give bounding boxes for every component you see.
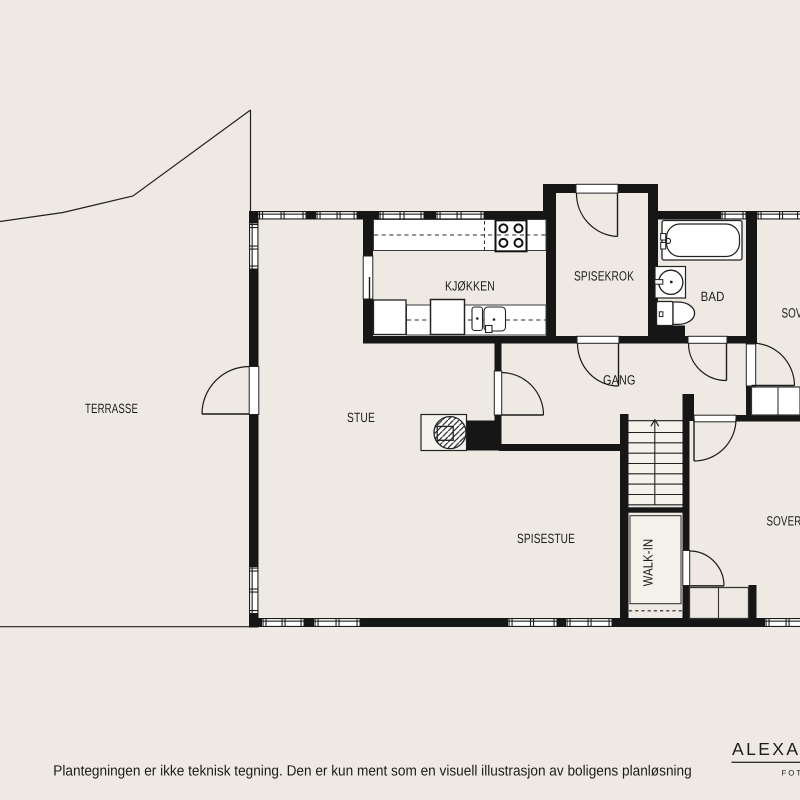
svg-text:Plantegningen er ikke teknisk: Plantegningen er ikke teknisk tegning. D… bbox=[53, 763, 691, 779]
svg-text:SPISESTUE: SPISESTUE bbox=[517, 531, 575, 546]
svg-text:STUE: STUE bbox=[347, 410, 375, 425]
svg-text:ALEXANDER: ALEXANDER bbox=[732, 739, 800, 759]
svg-text:SPISEKROK: SPISEKROK bbox=[574, 269, 634, 284]
svg-text:WALK-IN: WALK-IN bbox=[641, 539, 656, 587]
svg-text:BAD: BAD bbox=[701, 289, 725, 304]
svg-text:FOTOGRAF: FOTOGRAF bbox=[782, 768, 800, 777]
svg-text:SOVEROM: SOVEROM bbox=[767, 514, 800, 529]
svg-text:TERRASSE: TERRASSE bbox=[85, 401, 138, 416]
svg-text:SOVEROM: SOVEROM bbox=[782, 306, 800, 321]
svg-text:KJØKKEN: KJØKKEN bbox=[445, 279, 495, 294]
svg-text:GANG: GANG bbox=[603, 372, 636, 387]
